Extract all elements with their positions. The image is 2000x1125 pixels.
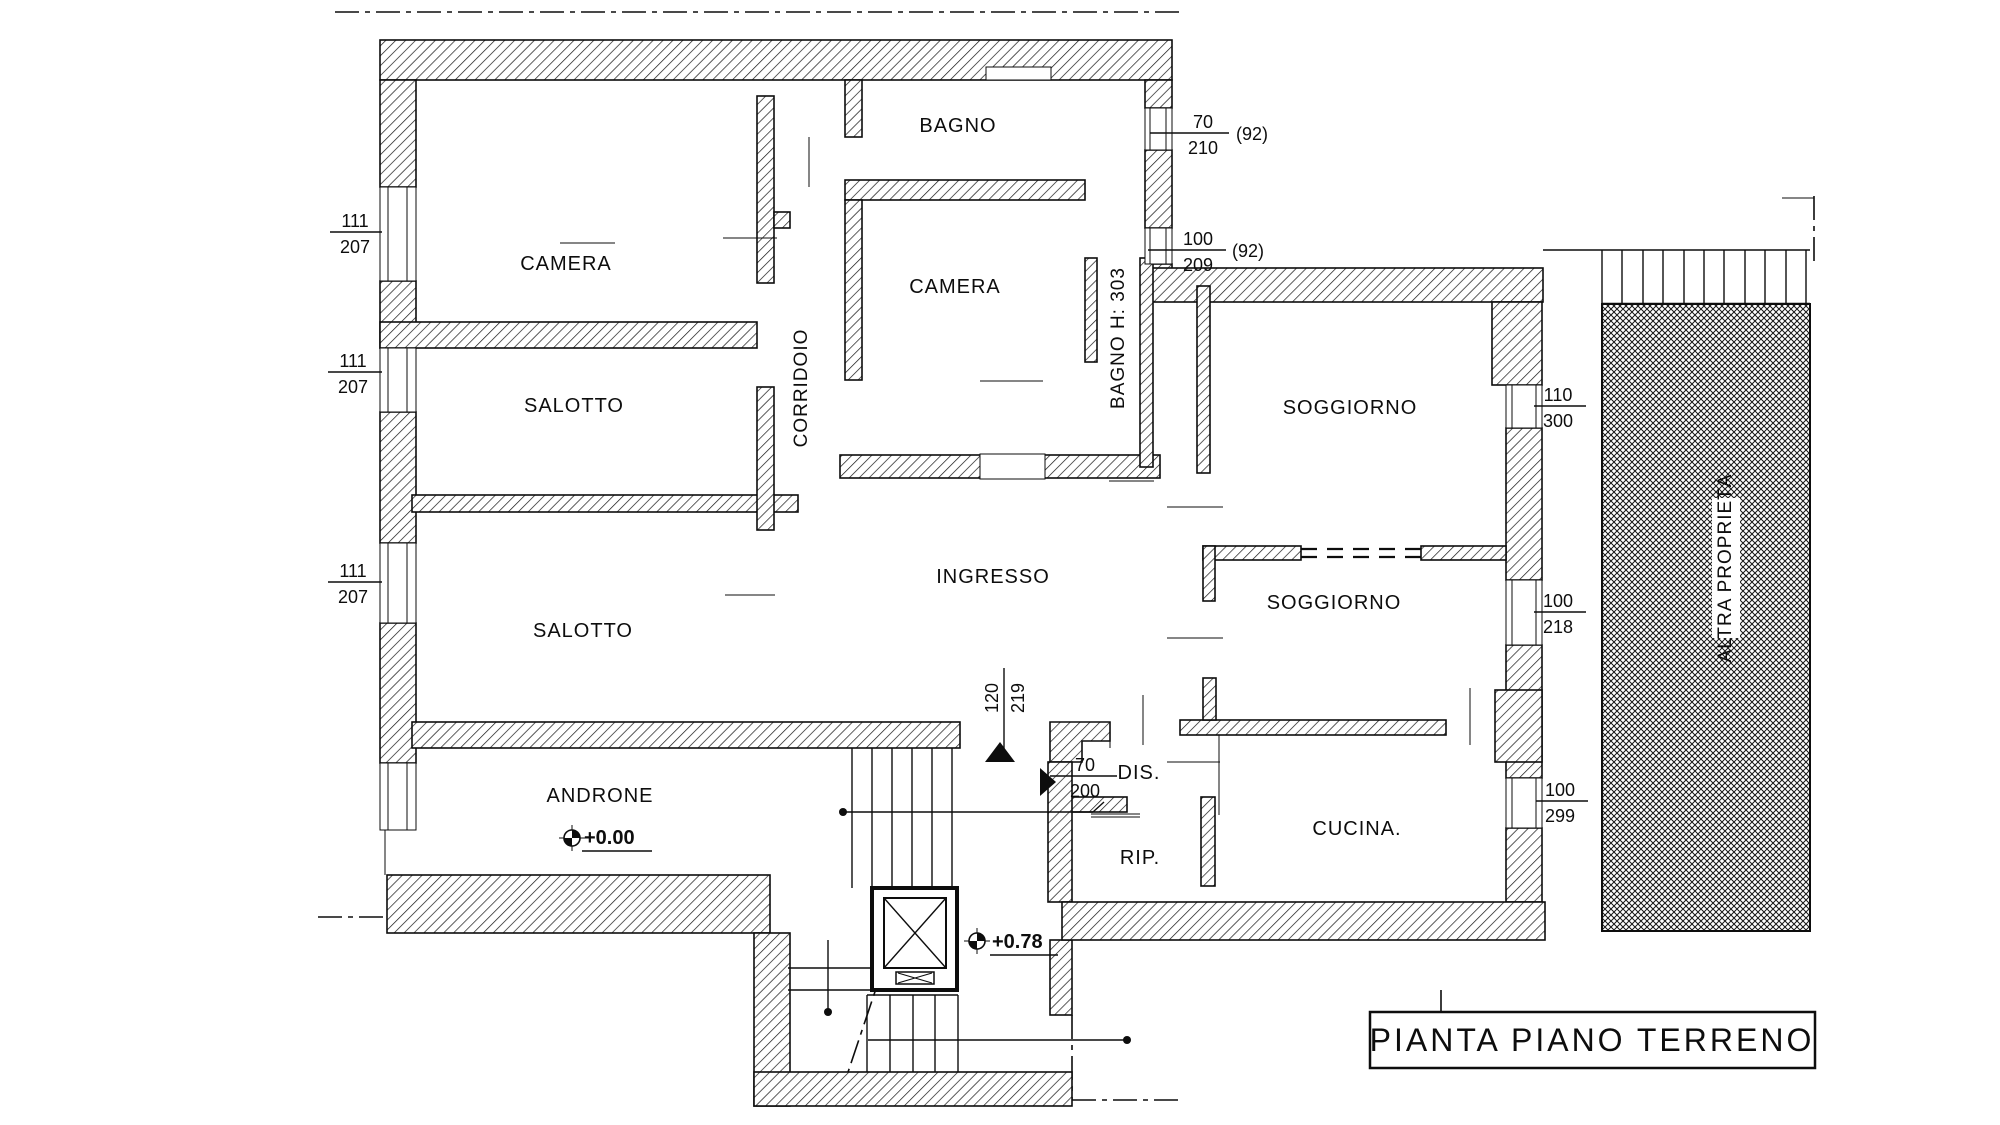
svg-text:110: 110 xyxy=(1544,385,1573,405)
room-label-altra-proprieta: ALTRA PROPRIETÀ xyxy=(1715,474,1736,663)
wall-segment xyxy=(845,200,862,380)
window xyxy=(380,763,416,830)
room-label-salotto1: SALOTTO xyxy=(524,395,624,417)
room-label-rip: RIP. xyxy=(1120,847,1160,869)
room-label-camera1: CAMERA xyxy=(520,253,612,275)
dimension-d8: 100 299 xyxy=(1536,780,1588,826)
wall-segment xyxy=(1085,258,1097,362)
window xyxy=(380,543,416,623)
wall-segment xyxy=(1140,258,1153,467)
wall-segment xyxy=(412,722,960,748)
door-opening xyxy=(980,454,1045,479)
wall-notch xyxy=(986,67,1051,80)
wall-segment xyxy=(774,212,790,228)
dashed-wall xyxy=(1301,549,1421,557)
wall-segment xyxy=(1050,940,1072,1015)
wall-segment xyxy=(1145,150,1172,228)
dimension-d2: 111 207 xyxy=(328,351,382,397)
room-label-bagno1: BAGNO xyxy=(919,115,996,137)
room-label-soggiorno2: SOGGIORNO xyxy=(1267,592,1402,614)
wall-segment xyxy=(380,40,1172,80)
floor-plan: CAMERA BAGNO CAMERA CORRIDOIO SALOTTO SA… xyxy=(0,0,2000,1125)
wall-segment xyxy=(757,387,774,530)
wall-segment xyxy=(1180,720,1446,735)
wall-segment xyxy=(380,80,416,187)
elevator-icon xyxy=(872,888,957,990)
wall-segment xyxy=(1421,546,1506,560)
wall-segment xyxy=(1203,678,1216,720)
elevation-androne: +0.00 xyxy=(584,827,635,849)
svg-text:70: 70 xyxy=(1193,112,1213,132)
wall-segment xyxy=(1506,428,1542,580)
svg-text:207: 207 xyxy=(338,377,368,397)
entrance-arrow-icons xyxy=(985,742,1056,796)
svg-text:200: 200 xyxy=(1070,781,1100,801)
drawing-title: PIANTA PIANO TERRENO xyxy=(1370,1022,1815,1058)
staircase-lower-flight xyxy=(788,940,1131,1072)
room-label-cucina: CUCINA. xyxy=(1312,818,1401,840)
svg-text:(92): (92) xyxy=(1236,124,1268,144)
wall-segment xyxy=(1495,690,1542,762)
title-block: PIANTA PIANO TERRENO xyxy=(1370,1012,1815,1068)
svg-text:207: 207 xyxy=(338,587,368,607)
room-label-salotto2: SALOTTO xyxy=(533,620,633,642)
svg-text:70: 70 xyxy=(1075,755,1095,775)
wall-segment xyxy=(1203,546,1301,560)
room-label-bagno2: BAGNO H: 303 xyxy=(1108,267,1129,409)
room-label-dis: DIS. xyxy=(1118,762,1161,784)
wall-segment xyxy=(380,322,757,348)
wall-segment xyxy=(757,96,774,283)
benchmark-symbol-androne xyxy=(559,825,585,851)
window xyxy=(1145,228,1172,264)
wall-segment xyxy=(845,180,1085,200)
svg-text:100: 100 xyxy=(1545,780,1575,800)
svg-text:100: 100 xyxy=(1543,591,1573,611)
wall-segment xyxy=(845,80,862,137)
altra-proprieta-area xyxy=(1602,304,1810,931)
wall-segment xyxy=(1062,902,1545,940)
entry-triangle-up-icon xyxy=(985,742,1015,762)
room-label-androne: ANDRONE xyxy=(546,785,653,807)
window xyxy=(380,187,416,281)
floor-plan-sheet: CAMERA BAGNO CAMERA CORRIDOIO SALOTTO SA… xyxy=(0,0,2000,1125)
wall-segment xyxy=(1145,80,1172,108)
room-label-soggiorno1: SOGGIORNO xyxy=(1283,397,1418,419)
window xyxy=(380,348,416,412)
dimension-d1: 111 207 xyxy=(330,211,382,257)
wall-segment xyxy=(1203,546,1215,601)
svg-text:210: 210 xyxy=(1188,138,1218,158)
svg-text:(92): (92) xyxy=(1232,241,1264,261)
room-label-camera2: CAMERA xyxy=(909,276,1001,298)
wall-segment xyxy=(1201,797,1215,886)
room-labels: CAMERA BAGNO CAMERA CORRIDOIO SALOTTO SA… xyxy=(520,115,1736,869)
room-label-ingresso: INGRESSO xyxy=(936,566,1050,588)
svg-text:218: 218 xyxy=(1543,617,1573,637)
svg-text:300: 300 xyxy=(1543,411,1573,431)
elevation-stairwell: +0.78 xyxy=(992,931,1043,953)
wall-segment xyxy=(387,875,770,933)
svg-text:111: 111 xyxy=(339,351,366,371)
window xyxy=(1145,108,1172,150)
wall-segment xyxy=(754,1072,1072,1106)
svg-text:111: 111 xyxy=(339,561,366,581)
svg-text:207: 207 xyxy=(340,237,370,257)
terrace-railing xyxy=(1543,250,1810,304)
room-label-corridoio: CORRIDOIO xyxy=(791,329,812,448)
svg-text:111: 111 xyxy=(341,211,368,231)
dimension-d3: 111 207 xyxy=(328,561,382,607)
wall-segment xyxy=(1492,302,1542,385)
wall-segment xyxy=(380,412,416,543)
svg-text:209: 209 xyxy=(1183,255,1213,275)
wall-segment xyxy=(1197,286,1210,473)
wall-segment xyxy=(1506,828,1542,902)
wall-segment xyxy=(412,495,798,512)
dimension-d9: 120 219 xyxy=(982,668,1028,728)
svg-text:100: 100 xyxy=(1183,229,1213,249)
wall-segment xyxy=(380,623,416,763)
benchmark-symbol-stairwell xyxy=(964,928,990,954)
svg-text:299: 299 xyxy=(1545,806,1575,826)
svg-text:219: 219 xyxy=(1008,683,1028,713)
window xyxy=(1506,778,1542,828)
svg-text:120: 120 xyxy=(982,683,1002,713)
